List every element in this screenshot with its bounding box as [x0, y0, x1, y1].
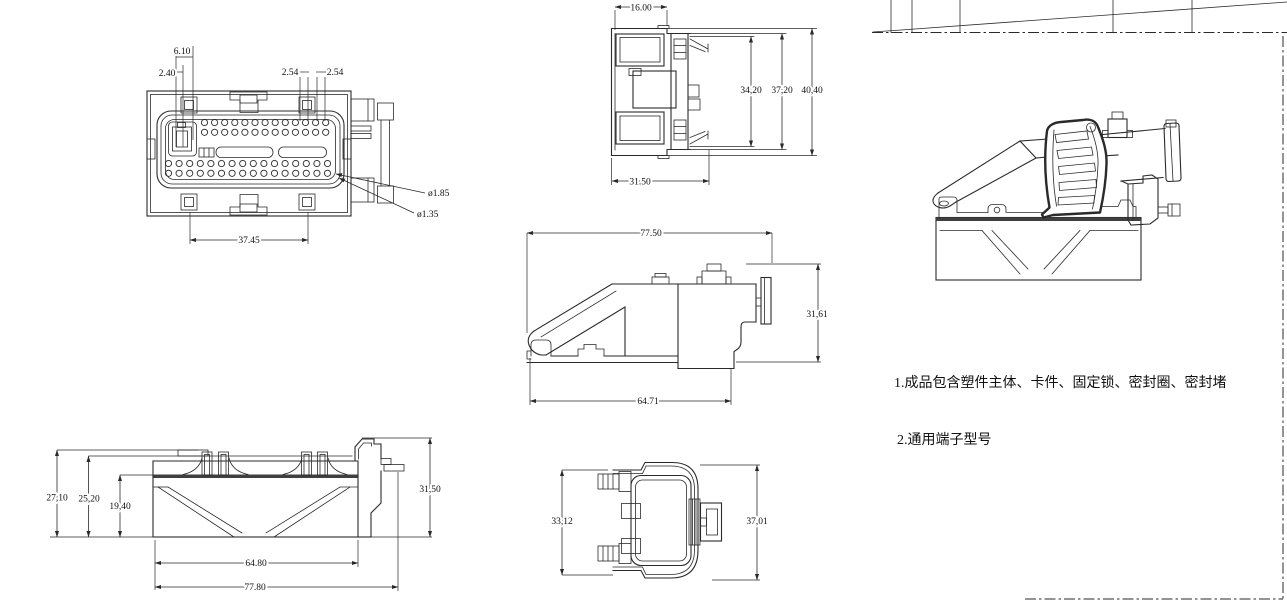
pin-field: [165, 119, 330, 176]
dim-40-40: 40,40: [801, 86, 823, 96]
side-profile-view: 77.50 64.71 31,61: [527, 229, 828, 407]
wire-cover-strap: [1042, 120, 1107, 218]
sheet-border: [1025, 36, 1283, 599]
rear-view: 33,12 37,01: [551, 463, 768, 581]
dim-dia-1-35: ø1.35: [417, 210, 439, 220]
dim-31-50-profile: 31,50: [419, 485, 441, 495]
side-section-dimensions: 16.00 31.50 34,20 37,20 40,40: [612, 4, 823, 188]
dim-31-61: 31,61: [806, 310, 828, 320]
dim-37-20: 37,20: [771, 86, 793, 96]
front-view: 6.10 2.40 2.54 2.54 37.45 ø1.85 ø1.35: [147, 46, 450, 246]
drawing-canvas: 6.10 2.40 2.54 2.54 37.45 ø1.85 ø1.35: [0, 0, 1287, 605]
dim-dia-1-85: ø1.85: [428, 189, 450, 199]
dim-2-54-b: 2.54: [327, 68, 344, 78]
dim-19-40: 19,40: [109, 502, 131, 512]
dim-77-50: 77.50: [640, 229, 662, 239]
note-line-2: 2.通用端子型号: [897, 432, 992, 448]
dim-37-45: 37.45: [238, 236, 260, 246]
drawing-sheet: 6.10 2.40 2.54 2.54 37.45 ø1.85 ø1.35: [0, 0, 1287, 605]
front-profile-view: 27,10 25,20 19,40 31,50 64.80 77.80: [46, 438, 441, 593]
note-line-1: 1.成品包含塑件主体、卡件、固定锁、密封圈、密封堵: [894, 374, 1227, 391]
mounting-bracket: [351, 99, 394, 203]
dim-33-12: 33,12: [551, 517, 573, 527]
dim-16-00: 16.00: [630, 4, 652, 14]
dim-37-01: 37,01: [746, 517, 768, 527]
dim-77-80: 77.80: [244, 583, 266, 593]
rear-view-dimensions: 33,12 37,01: [551, 465, 768, 580]
dim-31-50-section: 31.50: [629, 178, 651, 188]
isometric-view: [933, 112, 1181, 280]
dim-2-54-a: 2.54: [282, 68, 299, 78]
dim-27-10: 27,10: [46, 494, 68, 504]
dim-2-40: 2.40: [159, 69, 176, 79]
dim-64-71: 64.71: [637, 397, 659, 407]
side-section-view: 16.00 31.50 34,20 37,20 40,40: [612, 4, 823, 188]
dim-34-20: 34,20: [740, 86, 762, 96]
title-block-fragment: [872, 0, 1287, 33]
dim-64-80: 64.80: [245, 559, 267, 569]
polarization-key: [169, 122, 215, 157]
dim-6-10: 6.10: [174, 47, 191, 57]
notes: 1.成品包含塑件主体、卡件、固定锁、密封圈、密封堵 2.通用端子型号: [894, 374, 1227, 448]
dim-25-20: 25,20: [78, 495, 100, 505]
